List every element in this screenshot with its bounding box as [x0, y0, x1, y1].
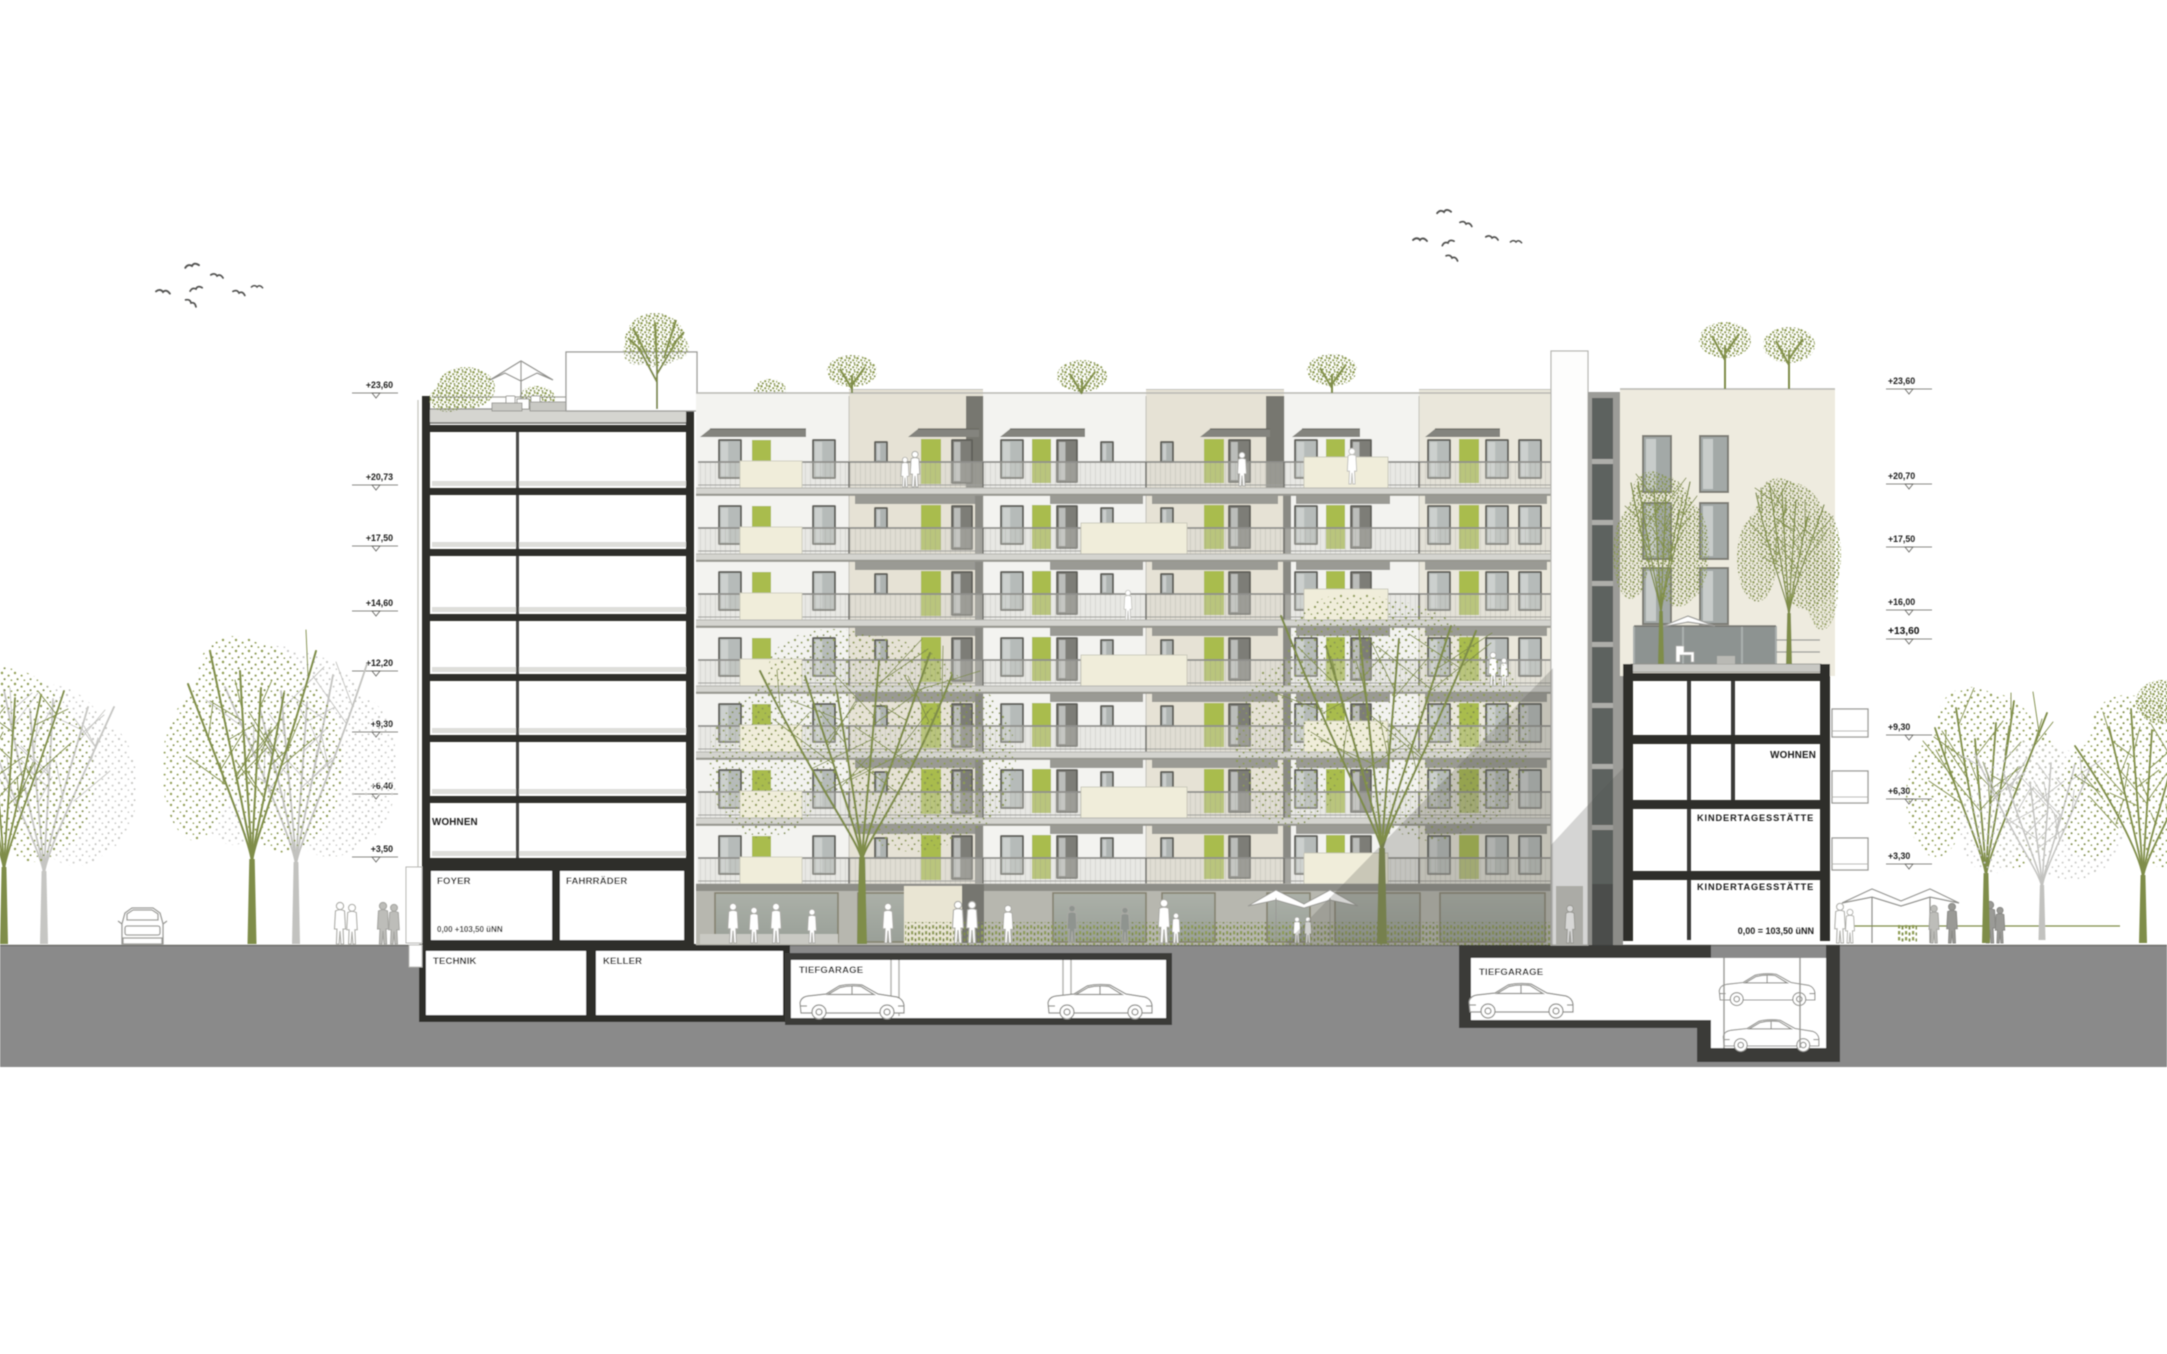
svg-text:+9,30: +9,30: [1888, 722, 1910, 732]
svg-text:KELLER: KELLER: [603, 956, 642, 967]
svg-text:+17,50: +17,50: [1888, 534, 1915, 544]
svg-text:+20,73: +20,73: [366, 472, 393, 482]
svg-text:+20,70: +20,70: [1888, 471, 1915, 481]
svg-text:+17,50: +17,50: [366, 533, 393, 543]
svg-text:TIEFGARAGE: TIEFGARAGE: [1479, 967, 1543, 978]
svg-text:TIEFGARAGE: TIEFGARAGE: [799, 965, 863, 976]
svg-text:FOYER: FOYER: [437, 876, 471, 887]
svg-text:TECHNIK: TECHNIK: [433, 956, 477, 967]
svg-text:+16,00: +16,00: [1888, 597, 1915, 607]
svg-text:+3,30: +3,30: [1888, 851, 1910, 861]
svg-text:+23,60: +23,60: [366, 380, 393, 390]
svg-text:WOHNEN: WOHNEN: [432, 817, 478, 828]
svg-text:KINDERTAGESSTÄTTE: KINDERTAGESSTÄTTE: [1697, 813, 1814, 823]
svg-text:KINDERTAGESSTÄTTE: KINDERTAGESSTÄTTE: [1697, 882, 1814, 892]
svg-text:+3,50: +3,50: [371, 844, 393, 854]
svg-text:0,00 +103,50 üNN: 0,00 +103,50 üNN: [437, 925, 503, 934]
svg-text:FAHRRÄDER: FAHRRÄDER: [566, 876, 627, 887]
svg-text:WOHNEN: WOHNEN: [1770, 750, 1816, 761]
svg-text:+13,60: +13,60: [1888, 626, 1920, 637]
svg-text:+12,20: +12,20: [366, 658, 393, 668]
svg-text:0,00 = 103,50 üNN: 0,00 = 103,50 üNN: [1738, 926, 1814, 936]
svg-text:+23,60: +23,60: [1888, 376, 1915, 386]
svg-text:+14,60: +14,60: [366, 598, 393, 608]
